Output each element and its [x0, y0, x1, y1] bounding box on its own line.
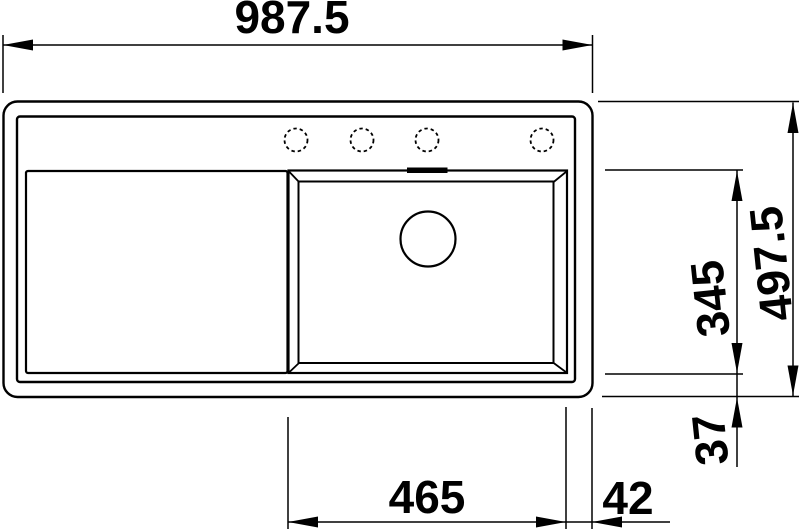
arrow-width-right — [563, 40, 593, 51]
overflow-slot — [407, 168, 448, 174]
sink-technical-drawing: 987.5 465 42 497.5 345 37 — [0, 0, 800, 531]
tap-hole-3 — [416, 129, 439, 152]
arrow-bowl-depth-top — [732, 171, 743, 201]
dim-label-right-offset: 42 — [602, 472, 653, 524]
dim-label-bowl-depth: 345 — [680, 258, 740, 340]
dim-label-overall-width: 987.5 — [234, 0, 349, 43]
arrow-width-left — [3, 40, 33, 51]
bowl-rim-outer — [289, 171, 568, 374]
arrow-depth-bottom — [788, 366, 799, 396]
bowl-rim-inner — [299, 182, 554, 364]
arrowheads-group — [3, 40, 799, 528]
sink-rim — [17, 117, 575, 383]
arrow-depth-top — [788, 103, 799, 133]
drainboard — [26, 171, 288, 373]
tap-hole-1 — [285, 129, 308, 152]
arrow-bowl-width-left — [288, 517, 318, 528]
dim-label-overall-depth: 497.5 — [739, 204, 800, 324]
dim-label-bowl-width: 465 — [389, 471, 466, 523]
sink-outline-group — [4, 102, 593, 398]
drain-hole — [401, 212, 456, 267]
arrow-bowl-width-right — [536, 517, 566, 528]
arrow-bowl-depth-bottom — [732, 343, 743, 373]
bowl-corner-bevel-top-left — [289, 172, 300, 183]
dimension-lines-group — [3, 35, 799, 529]
bowl-corner-bevel-top-right — [553, 172, 567, 183]
bowl-corner-bevel-bottom-left — [289, 363, 300, 373]
drawing-canvas: 987.5 465 42 497.5 345 37 — [0, 0, 800, 531]
tap-hole-4 — [531, 129, 554, 152]
bowl-corner-bevel-bottom-right — [553, 363, 567, 373]
dim-label-bottom-offset: 37 — [682, 412, 739, 468]
tap-hole-2 — [351, 129, 374, 152]
